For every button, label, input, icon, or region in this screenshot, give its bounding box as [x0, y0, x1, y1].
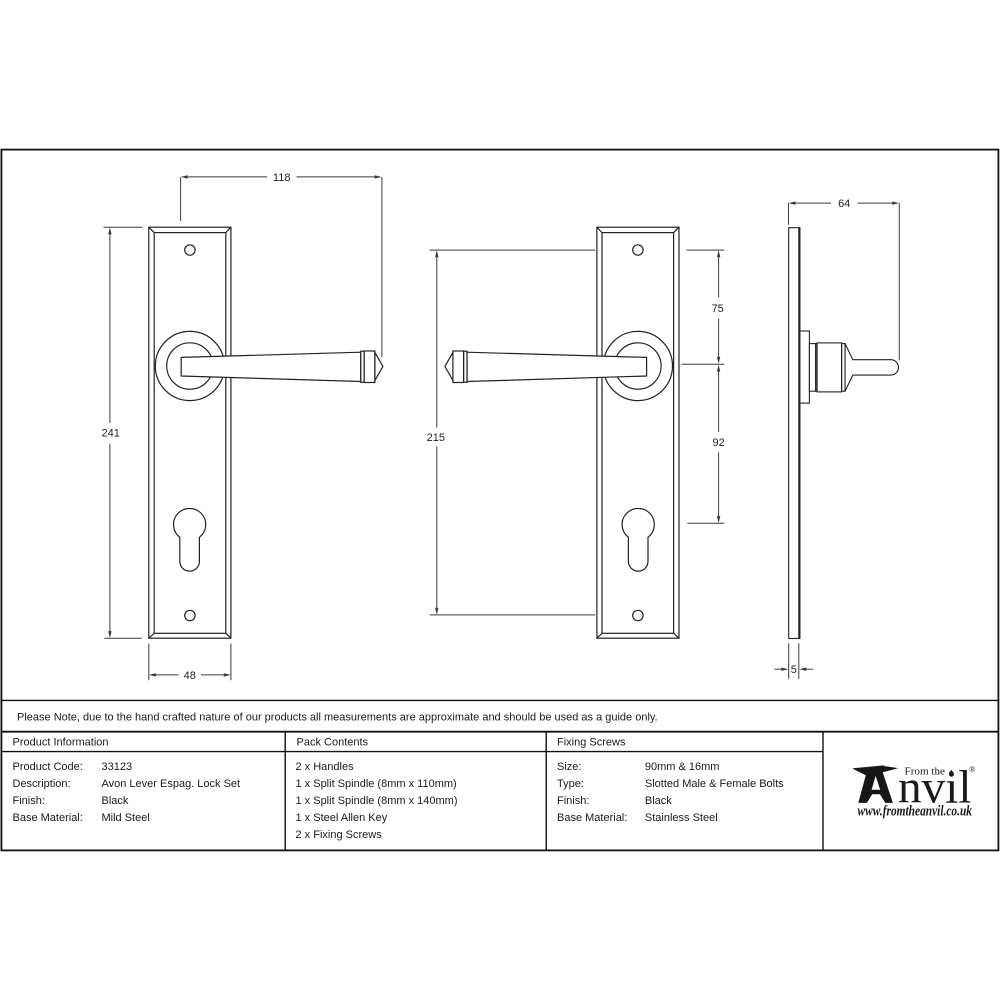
svg-text:Base Material:: Base Material:: [13, 812, 83, 824]
svg-text:2 x Handles: 2 x Handles: [296, 761, 355, 773]
svg-text:Slotted Male & Female Bolts: Slotted Male & Female Bolts: [645, 778, 784, 790]
svg-text:Fixing Screws: Fixing Screws: [557, 737, 626, 749]
svg-text:48: 48: [184, 670, 196, 682]
svg-text:1 x Split Spindle (8mm x 140mm: 1 x Split Spindle (8mm x 140mm): [296, 795, 458, 807]
svg-text:90mm & 16mm: 90mm & 16mm: [645, 761, 720, 773]
svg-text:Pack Contents: Pack Contents: [297, 737, 369, 749]
svg-text:Product Information: Product Information: [13, 737, 109, 749]
svg-text:Please Note, due to the hand c: Please Note, due to the hand crafted nat…: [17, 711, 658, 723]
svg-text:Black: Black: [102, 795, 129, 807]
svg-text:33123: 33123: [102, 761, 133, 773]
svg-text:®: ®: [969, 764, 976, 774]
svg-text:75: 75: [712, 303, 724, 315]
svg-text:1 x Steel Allen Key: 1 x Steel Allen Key: [296, 812, 388, 824]
svg-text:Size:: Size:: [557, 761, 581, 773]
svg-text:Finish:: Finish:: [557, 795, 589, 807]
svg-text:2 x Fixing Screws: 2 x Fixing Screws: [296, 829, 383, 841]
svg-text:Black: Black: [645, 795, 672, 807]
svg-text:215: 215: [427, 432, 445, 444]
svg-text:92: 92: [712, 437, 724, 449]
svg-text:118: 118: [273, 172, 291, 184]
svg-text:Stainless Steel: Stainless Steel: [645, 812, 718, 824]
svg-text:241: 241: [102, 428, 120, 440]
svg-text:5: 5: [791, 664, 797, 676]
svg-text:Type:: Type:: [557, 778, 584, 790]
svg-text:www.fromtheanvil.co.uk: www.fromtheanvil.co.uk: [858, 804, 973, 820]
svg-text:Description:: Description:: [13, 778, 71, 790]
svg-text:Product Code:: Product Code:: [13, 761, 83, 773]
svg-text:64: 64: [838, 198, 850, 210]
svg-text:1 x Split Spindle (8mm x 110mm: 1 x Split Spindle (8mm x 110mm): [296, 778, 457, 790]
svg-text:Finish:: Finish:: [13, 795, 45, 807]
svg-text:Base Material:: Base Material:: [557, 812, 627, 824]
svg-text:Mild Steel: Mild Steel: [102, 812, 150, 824]
svg-text:Avon Lever Espag. Lock Set: Avon Lever Espag. Lock Set: [102, 778, 241, 790]
